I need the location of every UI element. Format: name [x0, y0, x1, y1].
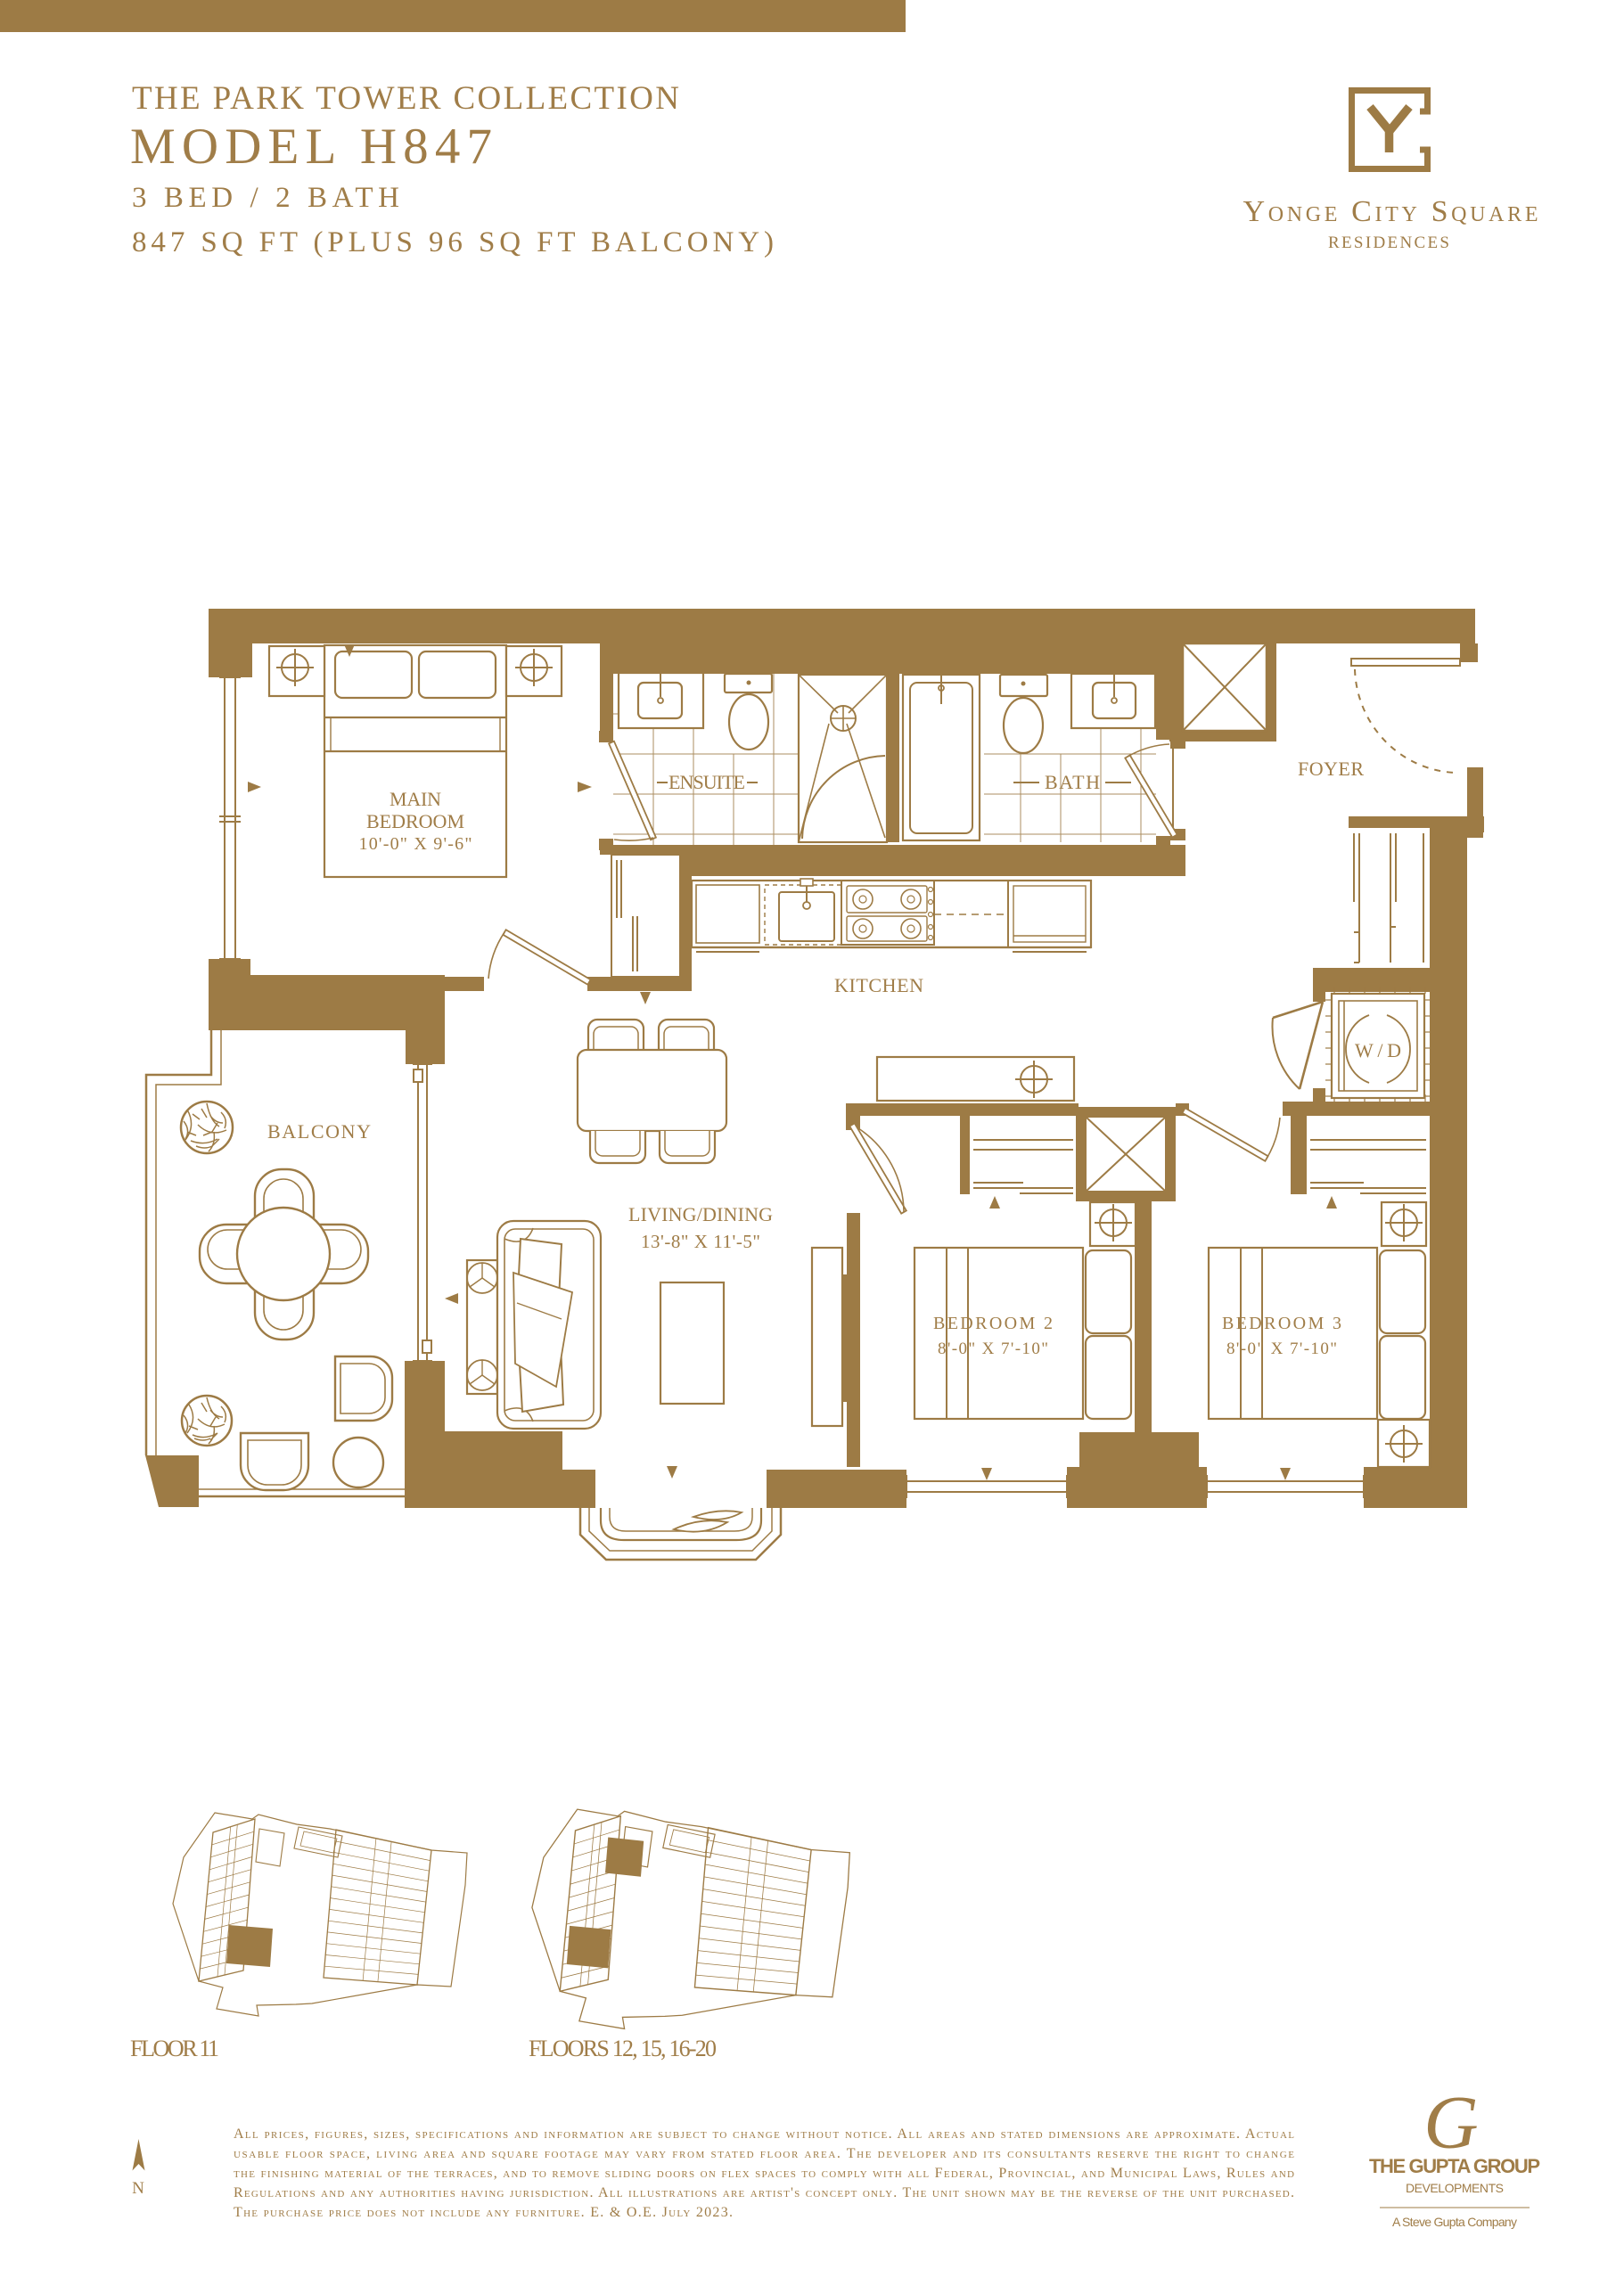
svg-text:W/D: W/D: [1355, 1039, 1401, 1061]
svg-text:The purchase price does not in: The purchase price does not include any …: [234, 2205, 733, 2220]
svg-text:Regulations and any authoritie: Regulations and any authorities having j…: [234, 2185, 1294, 2200]
svg-text:usable floor space, living are: usable floor space, living area and squa…: [234, 2146, 1294, 2161]
svg-text:THE PARK TOWER COLLECTION: THE PARK TOWER COLLECTION: [132, 80, 679, 117]
svg-text:13'-8" X 11'-5": 13'-8" X 11'-5": [641, 1231, 760, 1252]
svg-text:DEVELOPMENTS: DEVELOPMENTS: [1406, 2181, 1504, 2195]
svg-text:LIVING/DINING: LIVING/DINING: [628, 1203, 773, 1225]
svg-text:G: G: [1423, 2081, 1478, 2165]
svg-text:MAIN: MAIN: [390, 788, 441, 810]
svg-text:THE GUPTA GROUP: THE GUPTA GROUP: [1369, 2155, 1540, 2177]
svg-text:8'-0" X 7'-10": 8'-0" X 7'-10": [1226, 1340, 1337, 1358]
svg-text:BEDROOM 2: BEDROOM 2: [933, 1314, 1053, 1333]
svg-text:BEDROOM: BEDROOM: [366, 810, 464, 832]
svg-text:N: N: [132, 2179, 144, 2198]
svg-text:the finishing material of the: the finishing material of the terraces, …: [234, 2166, 1294, 2181]
svg-text:BEDROOM 3: BEDROOM 3: [1222, 1314, 1341, 1333]
svg-text:A Steve Gupta Company: A Steve Gupta Company: [1392, 2215, 1517, 2229]
svg-text:8'-0" X 7'-10": 8'-0" X 7'-10": [938, 1340, 1048, 1358]
svg-text:FOYER: FOYER: [1298, 758, 1364, 780]
svg-text:All prices, figures, sizes, sp: All prices, figures, sizes, specificatio…: [234, 2126, 1294, 2142]
svg-text:3 BED / 2 BATH: 3 BED / 2 BATH: [132, 182, 399, 214]
svg-text:Yonge City Square: Yonge City Square: [1243, 195, 1538, 228]
svg-text:KITCHEN: KITCHEN: [834, 974, 923, 996]
svg-text:FLOOR 11: FLOOR 11: [130, 2036, 221, 2061]
svg-text:10'-0" X 9'-6": 10'-0" X 9'-6": [359, 834, 472, 854]
svg-text:BATH: BATH: [1045, 771, 1100, 793]
svg-text:ENSUITE: ENSUITE: [668, 771, 745, 793]
svg-text:FLOORS 12, 15, 16-20: FLOORS 12, 15, 16-20: [529, 2036, 718, 2061]
svg-text:847 SQ FT (PLUS 96 SQ FT BALCO: 847 SQ FT (PLUS 96 SQ FT BALCONY): [132, 226, 774, 258]
svg-text:RESIDENCES: RESIDENCES: [1328, 234, 1449, 252]
svg-text:MODEL H847: MODEL H847: [130, 119, 492, 175]
